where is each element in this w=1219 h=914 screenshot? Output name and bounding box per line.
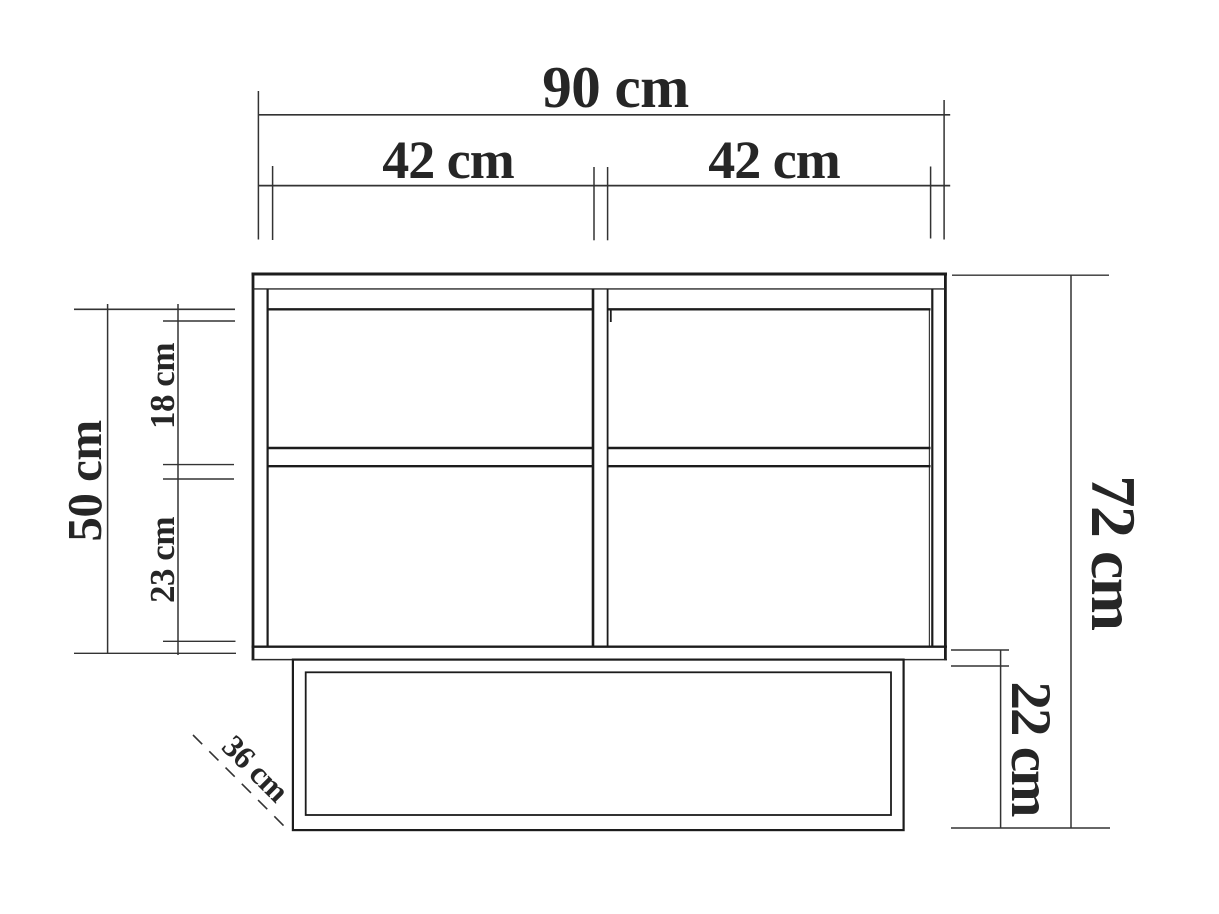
svg-text:50 cm: 50 cm [57, 420, 112, 541]
svg-text:42 cm: 42 cm [708, 130, 840, 190]
svg-text:22 cm: 22 cm [999, 681, 1062, 817]
svg-text:72 cm: 72 cm [1078, 475, 1149, 630]
svg-text:23 cm: 23 cm [143, 517, 182, 603]
svg-text:42 cm: 42 cm [382, 130, 514, 190]
svg-text:90 cm: 90 cm [542, 54, 689, 120]
svg-text:18 cm: 18 cm [143, 343, 182, 429]
